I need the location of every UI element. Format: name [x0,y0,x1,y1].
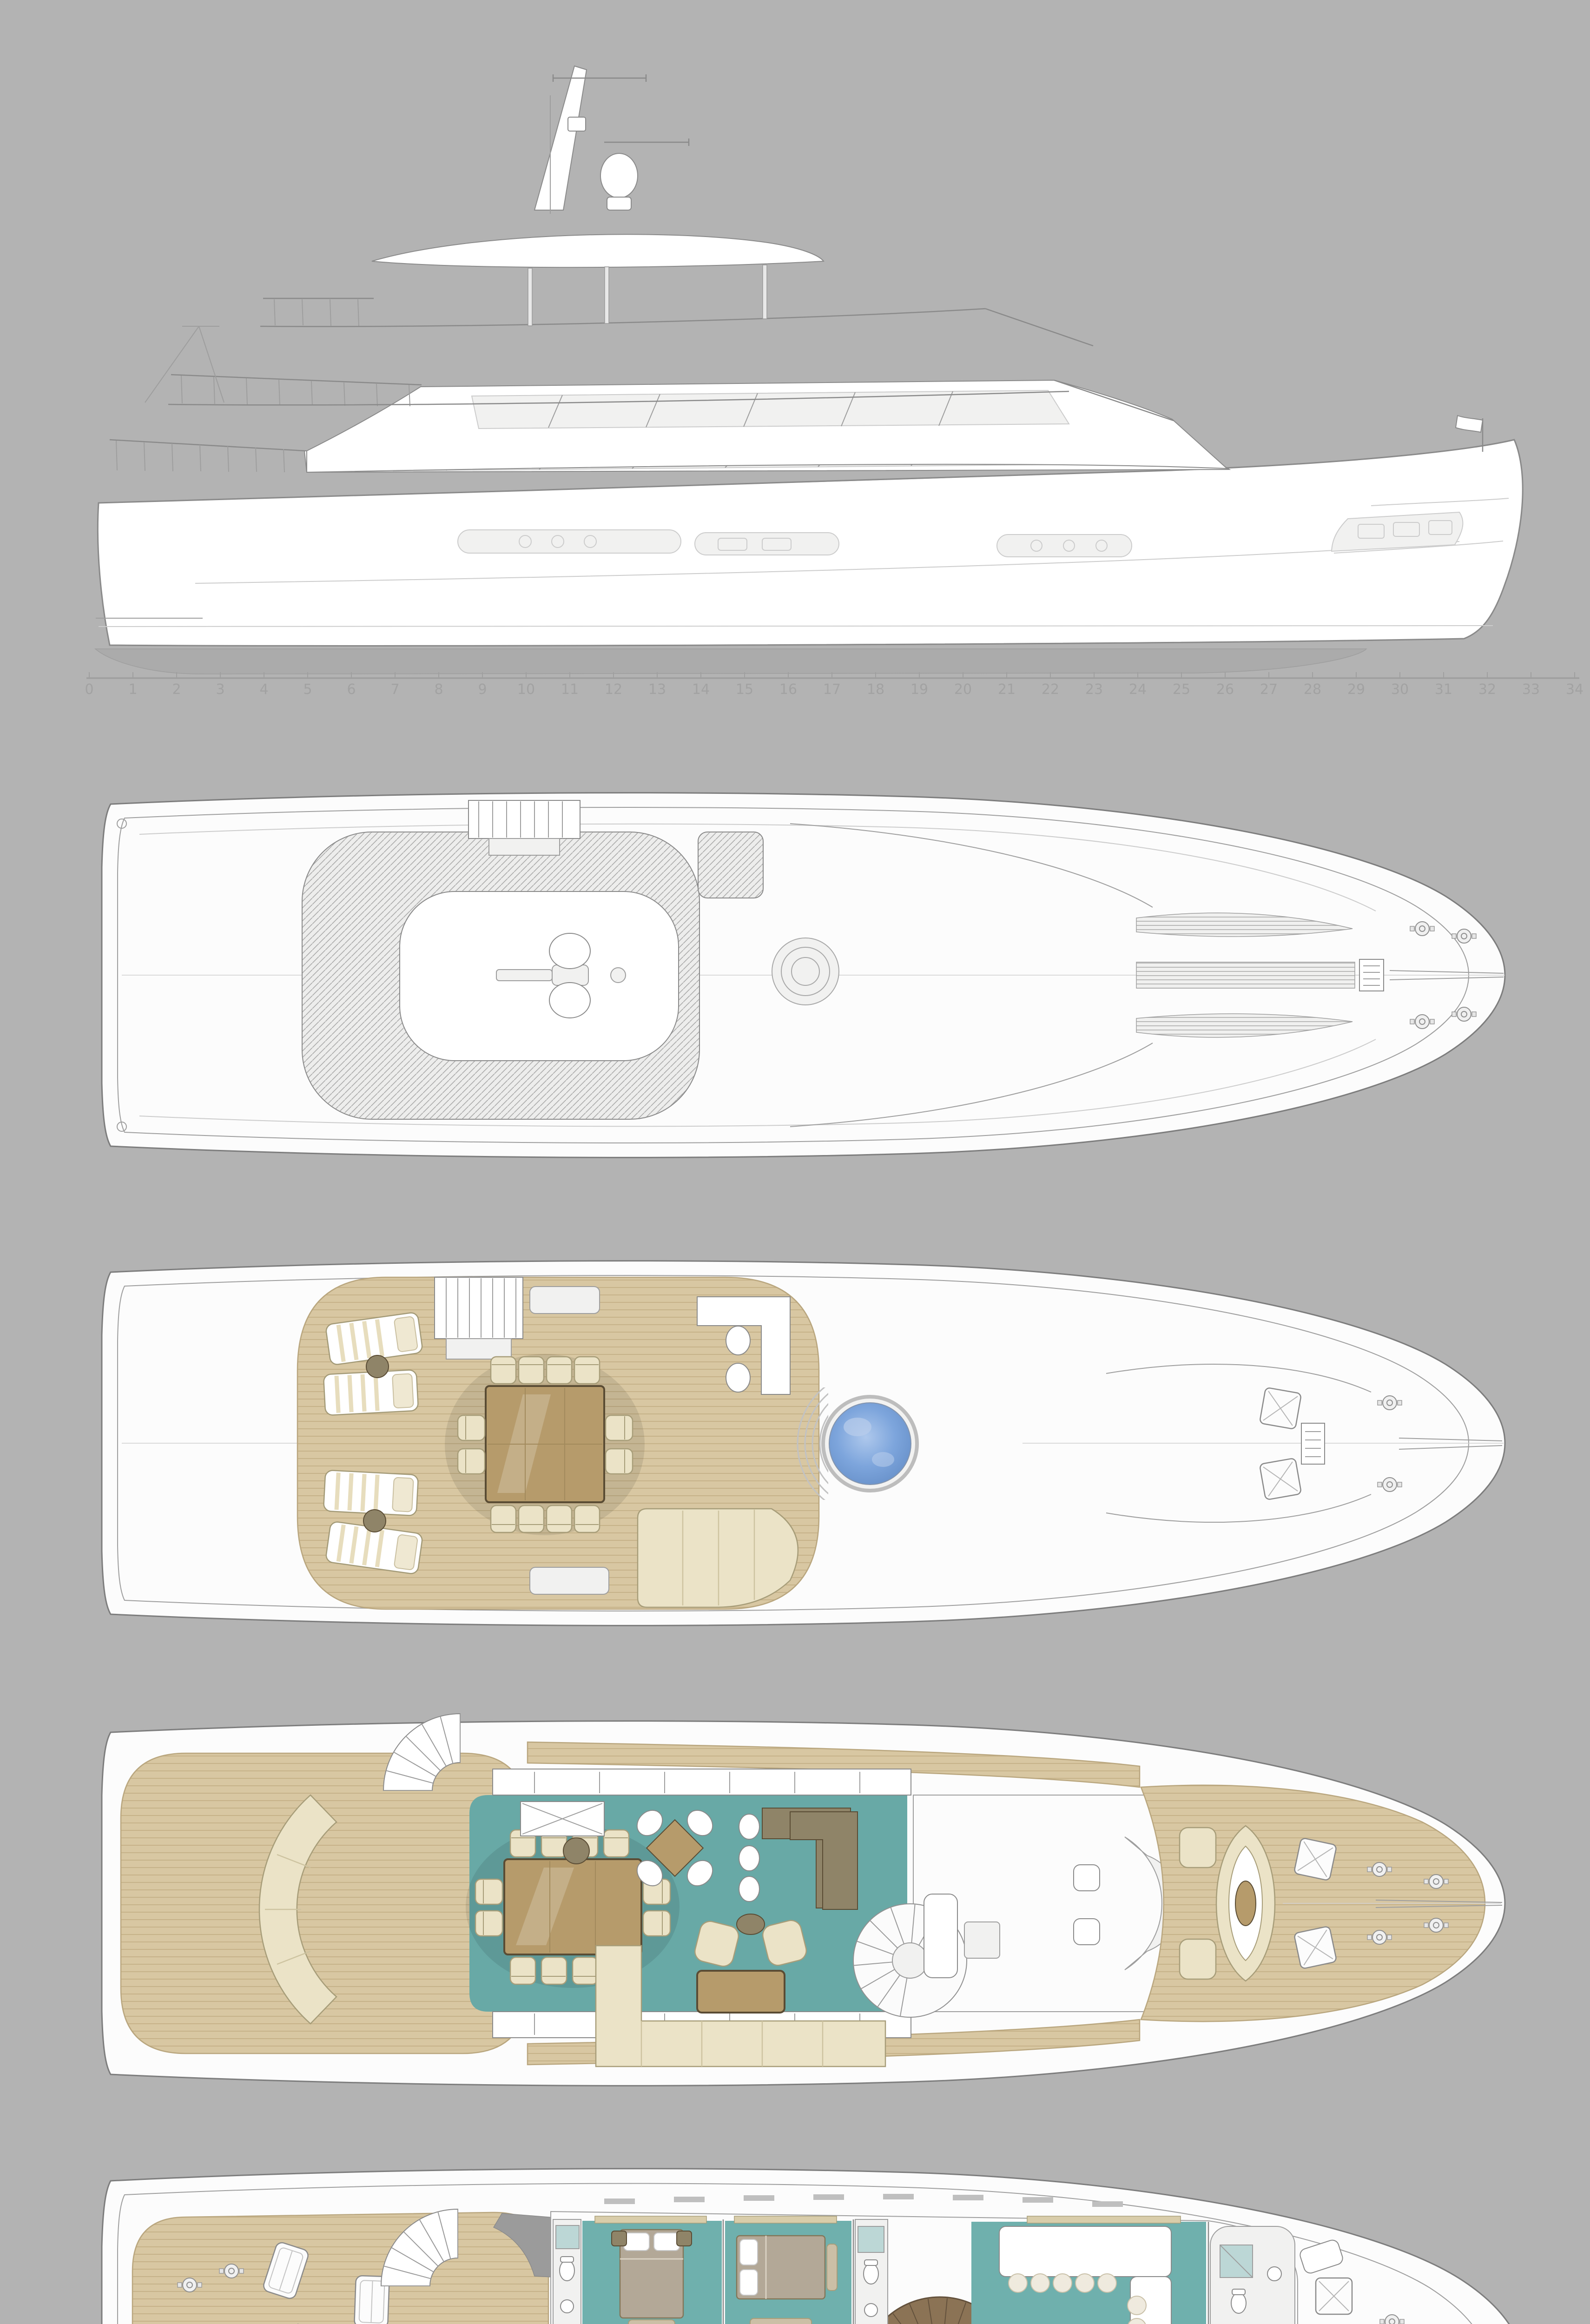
double-bed [737,2236,837,2299]
hardtop-plan [302,832,699,1119]
aft-deck-teak [132,2212,548,2324]
ruler-label: 1 [128,681,137,698]
ruler-label: 4 [259,681,268,698]
ga-drawing: 0123456789101112131415161718192021222324… [0,0,1590,2324]
pilot-settee [924,1894,957,1978]
hardtop [372,234,824,267]
lounger [323,1470,418,1516]
ruler-label: 31 [1435,681,1452,698]
dining-chair [475,1879,502,1904]
yacht-general-arrangement-sheet: 0123456789101112131415161718192021222324… [0,0,1590,2324]
ruler-label: 33 [1522,681,1540,698]
accommodation-block [551,2212,1298,2324]
bow-pad [1180,1828,1216,1868]
ruler-label: 29 [1347,681,1365,698]
master-bathrooms [1210,2226,1295,2324]
view-deck-top [102,793,1505,1158]
console-table [530,1287,600,1314]
aft-table [530,1567,609,1594]
bar-stool [739,1846,759,1871]
ruler-label: 19 [910,681,928,698]
view-main-deck [102,2169,1525,2324]
upper-deck-structure [145,326,1227,472]
alfresco-dining [445,1354,645,1535]
ruler-label: 9 [478,681,487,698]
ruler-label: 5 [303,681,312,698]
side-table [366,1355,389,1378]
dining-chair [491,1357,516,1384]
bar-stool [739,1814,759,1839]
dining-chair [604,1830,629,1857]
ruler-label: 17 [823,681,841,698]
ruler-label: 21 [998,681,1016,698]
ruler-label: 34 [1566,681,1583,698]
helm-chair [1074,1865,1100,1891]
view-bridge-deck [102,1714,1505,2086]
ruler-label: 18 [867,681,884,698]
lounger [323,1370,418,1415]
dining-chair [547,1505,572,1532]
ruler-label: 13 [648,681,666,698]
bar-stool [726,1363,750,1392]
ruler-label: 25 [1173,681,1190,698]
ruler-label: 30 [1391,681,1409,698]
guest-cabin-port-mid [725,2216,851,2324]
dining-chair [510,1957,535,1984]
chart-table [964,1922,1000,1958]
ruler-label: 12 [605,681,622,698]
view-side-profile [95,66,1523,674]
ruler-label: 0 [85,681,93,698]
sideboard [521,1802,604,1836]
side-table [737,1914,765,1934]
ruler-label: 20 [954,681,972,698]
dining-chair [458,1415,485,1440]
scale-ruler-top: 0123456789101112131415161718192021222324… [85,672,1583,698]
bar-stool [726,1326,750,1355]
sunpads [638,1509,798,1607]
ruler-label: 32 [1478,681,1496,698]
pouf [563,1838,589,1864]
ruler-label: 11 [561,681,579,698]
ruler-label: 15 [736,681,753,698]
salon-wall-top [493,1769,911,1795]
ruler-label: 6 [347,681,356,698]
radar-dome [600,153,638,198]
cabin-bath-mid-port [855,2219,888,2324]
stern-davit-crane [145,326,224,403]
sundeck-structure [260,234,1093,346]
ruler-label: 3 [216,681,224,698]
foredeck [1141,1785,1502,2021]
skylounge [466,1769,911,2067]
ruler-label: 10 [517,681,535,698]
view-sundeck [102,1261,1505,1626]
cabin-bath-aft-port [553,2219,581,2324]
ruler-label: 14 [692,681,710,698]
bow-pad [1180,1939,1216,1979]
bar-stool [739,1876,759,1901]
double-bed [620,2230,683,2324]
ruler-label: 22 [1042,681,1059,698]
ruler-label: 2 [172,681,181,698]
dining-chair [574,1505,600,1532]
ruler-label: 28 [1304,681,1321,698]
dining-chair [606,1449,633,1474]
dining-chair [643,1911,670,1936]
dining-chair [475,1911,502,1936]
hatched-panel-side [698,832,763,898]
jacuzzi-seen-from-above [772,938,839,1005]
dining-chair [606,1415,633,1440]
master-lounge [971,2216,1206,2324]
dining-chair [573,1957,598,1984]
ruler-label: 16 [779,681,797,698]
guest-cabin-port-aft [582,2216,722,2324]
radar-mast [534,66,689,214]
ruler-label: 8 [434,681,443,698]
ruler-label: 24 [1129,681,1147,698]
ruler-label: 26 [1216,681,1234,698]
helm-chair [1074,1919,1100,1945]
dining-chair [519,1505,544,1532]
dining-chair [574,1357,600,1384]
ruler-label: 7 [390,681,399,698]
bow-table [1235,1881,1256,1926]
dining-chair [519,1357,544,1384]
underwater-hull [95,649,1366,674]
ruler-label: 27 [1260,681,1278,698]
coffee-table [697,1971,785,2013]
stair-grate [435,1277,523,1359]
dining-chair [547,1357,572,1384]
jacuzzi-pool [829,1403,911,1485]
side-table [363,1510,386,1532]
ruler-label: 23 [1085,681,1103,698]
dining-chair [541,1957,567,1984]
dining-chair [491,1505,516,1532]
dining-chair [458,1449,485,1474]
